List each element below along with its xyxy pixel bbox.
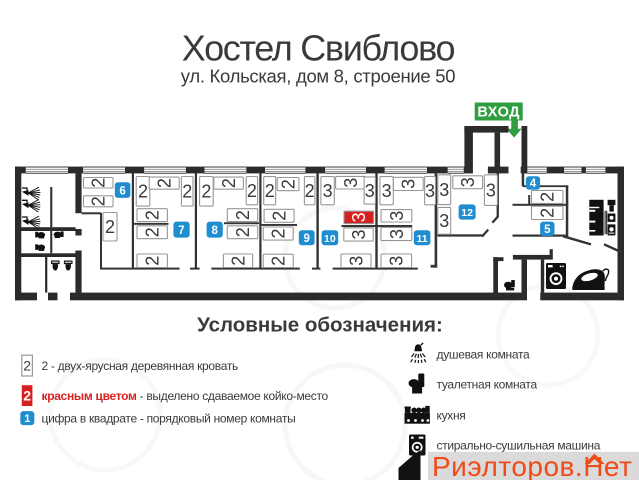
svg-text:2: 2	[182, 182, 192, 202]
svg-text:2: 2	[269, 256, 289, 266]
svg-text:10: 10	[324, 233, 336, 245]
svg-text:2 - двух-ярусная деревянная кр: 2 - двух-ярусная деревянная кровать	[42, 359, 239, 373]
svg-text:2: 2	[538, 208, 558, 218]
svg-text:Риэлторов.Нет: Риэлторов.Нет	[432, 451, 632, 480]
svg-text:2: 2	[233, 210, 253, 220]
svg-text:2: 2	[138, 182, 148, 202]
svg-text:12: 12	[461, 207, 473, 219]
svg-text:2: 2	[305, 181, 315, 201]
svg-text:ВХОД: ВХОД	[477, 104, 520, 120]
svg-text:3: 3	[387, 211, 407, 221]
svg-text:2: 2	[247, 181, 257, 201]
svg-text:3: 3	[387, 229, 407, 239]
svg-text:3: 3	[439, 180, 449, 200]
svg-text:3: 3	[439, 211, 449, 231]
svg-text:9: 9	[303, 233, 309, 245]
svg-text:3: 3	[458, 177, 478, 187]
svg-text:2: 2	[228, 256, 248, 266]
svg-text:11: 11	[417, 233, 428, 245]
svg-text:2: 2	[270, 211, 290, 221]
svg-text:Хостел Свиблово: Хостел Свиблово	[182, 28, 455, 69]
svg-text:4: 4	[530, 178, 537, 190]
svg-text:2: 2	[269, 229, 289, 239]
svg-text:туалетная комната: туалетная комната	[437, 378, 538, 392]
svg-text:3: 3	[486, 181, 496, 201]
svg-text:2: 2	[89, 178, 109, 188]
svg-text:2: 2	[105, 217, 115, 237]
svg-text:2: 2	[23, 388, 31, 404]
svg-text:3: 3	[382, 181, 392, 201]
svg-text:2: 2	[219, 178, 239, 188]
svg-text:3: 3	[387, 256, 407, 266]
svg-text:3: 3	[349, 212, 369, 222]
svg-text:2: 2	[278, 179, 298, 189]
svg-text:6: 6	[119, 185, 125, 197]
svg-text:2: 2	[265, 181, 275, 201]
svg-text:3: 3	[349, 229, 369, 239]
svg-text:кухня: кухня	[437, 409, 466, 423]
svg-text:2: 2	[538, 192, 558, 202]
svg-text:Условные обозначения:: Условные обозначения:	[197, 314, 443, 337]
svg-text:цифра в квадрате - порядковый: цифра в квадрате - порядковый номер комн…	[42, 411, 296, 425]
svg-text:ул. Кольская, дом 8, строение: ул. Кольская, дом 8, строение 50	[181, 66, 455, 87]
svg-text:2: 2	[23, 358, 31, 374]
svg-text:3: 3	[425, 181, 435, 201]
svg-text:2: 2	[201, 182, 211, 202]
svg-text:3: 3	[399, 179, 419, 189]
svg-text:1: 1	[24, 413, 30, 425]
svg-text:8: 8	[211, 225, 218, 237]
svg-text:3: 3	[341, 178, 361, 188]
svg-text:2: 2	[143, 227, 163, 237]
svg-text:2: 2	[233, 227, 253, 237]
svg-text:2: 2	[143, 210, 163, 220]
svg-text:3: 3	[323, 181, 333, 201]
svg-text:5: 5	[544, 224, 551, 236]
svg-text:7: 7	[178, 225, 184, 237]
svg-text:красным цветом - выделено сдав: красным цветом - выделено сдаваемое койк…	[42, 389, 329, 403]
svg-text:3: 3	[346, 256, 366, 266]
svg-text:душевая комната: душевая комната	[437, 348, 531, 362]
svg-text:2: 2	[89, 196, 109, 206]
svg-text:2: 2	[143, 256, 163, 266]
svg-text:3: 3	[365, 181, 375, 201]
svg-text:2: 2	[155, 178, 175, 188]
